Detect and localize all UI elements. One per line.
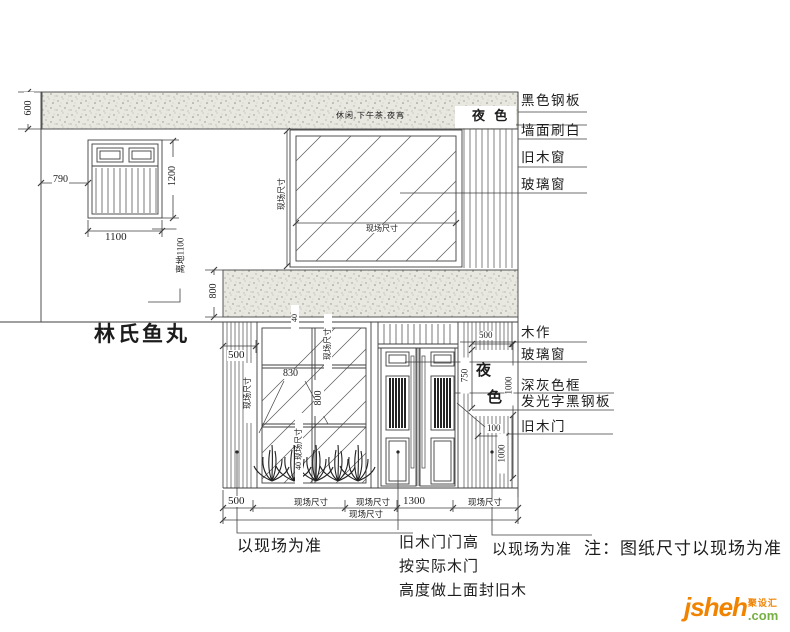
dim-40-site: 40 现场尺寸 <box>295 413 303 485</box>
dim-750: 750 <box>461 358 470 394</box>
logo-name: jsheh <box>684 596 747 619</box>
dim-site-horizontal-upper-window: 现场尺寸 <box>365 225 399 233</box>
dim-1300: 1300 <box>402 496 426 507</box>
note-main: 注：图纸尺寸以现场为准 <box>584 539 782 559</box>
dim-site-left-slats: 现场尺寸 <box>244 363 252 423</box>
label-dark-gray-frame: 深灰色框 <box>521 378 581 394</box>
dim-above-ground-1100: 离地1100 <box>177 223 186 289</box>
elevation-sheet: 600 休闲,下午茶,夜宵 夜 色 黑色钢板 墙面刷白 旧木窗 玻璃窗 790 … <box>0 0 790 632</box>
dim-1200: 1200 <box>168 157 178 195</box>
dim-830: 830 <box>282 369 299 379</box>
label-wall-painted-white: 墙面刷白 <box>521 123 581 139</box>
dim-600: 600 <box>24 92 34 124</box>
shop-name: 林氏鱼丸 <box>94 322 190 346</box>
upper-window-detail <box>88 140 162 218</box>
label-glass-window-door: 玻璃窗 <box>521 347 566 363</box>
dim-site-bottom-c: 现场尺寸 <box>467 498 503 507</box>
elevation-drawing <box>0 0 790 632</box>
dim-40: 40 <box>291 305 299 331</box>
upper-window-dims <box>38 138 180 302</box>
dim-1000-upper: 1000 <box>505 366 514 406</box>
label-woodwork: 木作 <box>521 325 551 341</box>
dim-100: 100 <box>486 424 502 433</box>
lower-wall-band <box>223 270 518 317</box>
logo-tld: .com <box>748 609 778 622</box>
label-old-wood-door: 旧木门 <box>521 419 566 435</box>
entry-door <box>378 322 458 488</box>
plants <box>254 445 375 481</box>
label-glass-window: 玻璃窗 <box>521 177 566 193</box>
dim-1100: 1100 <box>104 232 128 243</box>
banner-small-text: 休闲,下午茶,夜宵 <box>336 111 405 120</box>
storefront-window <box>180 322 517 488</box>
note-as-site-left: 以现场为准 <box>237 538 322 556</box>
dim-site-bottom-a: 现场尺寸 <box>293 498 329 507</box>
night-sign-char-2: 色 <box>487 390 502 407</box>
label-illuminated-black-steel: 发光字黑钢板 <box>521 394 611 410</box>
dim-800: 800 <box>314 380 324 416</box>
jsheh-watermark-logo: jsheh 聚设汇 .com <box>684 596 778 622</box>
note-as-site-right: 以现场为准 <box>492 542 572 559</box>
dim-500-mid: 500 <box>478 331 494 340</box>
label-black-steel-plate: 黑色钢板 <box>521 93 581 109</box>
dim-site-bottom-b: 现场尺寸 <box>355 498 391 507</box>
label-old-wood-window: 旧木窗 <box>521 150 566 166</box>
dim-site-bottom-total: 现场尺寸 <box>348 510 384 519</box>
upper-right-slats <box>464 129 512 268</box>
dim-500-storefront: 500 <box>227 350 246 361</box>
dim-800-band: 800 <box>209 275 219 307</box>
dim-site-vertical-upper-window: 现场尺寸 <box>278 164 286 224</box>
dim-site-window-top: 现场尺寸 <box>324 314 332 374</box>
glass-hatch <box>196 131 566 261</box>
dim-1000-lower: 1000 <box>498 434 507 474</box>
night-sign-band-text: 夜 色 <box>472 109 510 124</box>
dim-500-bottom: 500 <box>227 496 246 507</box>
upper-wall-band <box>42 92 518 129</box>
dim-790: 790 <box>52 175 69 185</box>
night-sign-char-1: 夜 <box>476 363 491 380</box>
upper-glass-window <box>196 128 566 269</box>
